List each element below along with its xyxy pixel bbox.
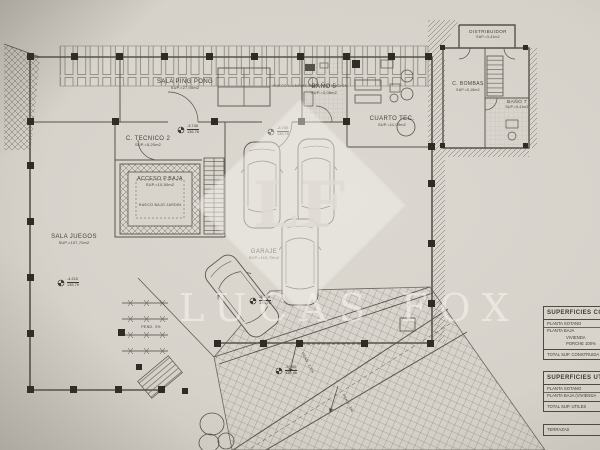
- hueco-bajo-jardin-note: HUECO BAJO JARDIN: [123, 203, 197, 207]
- table-title: SUPERFICIES CONSTRUIDAS: [544, 307, 600, 320]
- room-area: SUP.=3,41m2: [460, 35, 516, 39]
- table-total-row: TOTAL SUP. UTILES: [544, 401, 600, 411]
- room-area: SUP.=115,79m2: [232, 256, 296, 260]
- room-label-sala-juegos: SALA JUEGOS SUP.=107,70m2: [38, 234, 110, 246]
- table-row: PORCHE 100%: [544, 341, 600, 347]
- table-row: PLANTA SOTANO: [544, 386, 600, 393]
- table-row: PLANTA SOTANO: [544, 321, 600, 328]
- room-label-c-bombas: C. BOMBAS SUP.=5,18m2: [444, 82, 492, 92]
- room-area: SUP.=107,70m2: [38, 241, 110, 245]
- room-area: SUP.=11,09m2: [350, 123, 434, 127]
- driveway-ramp: [138, 278, 545, 450]
- room-label-bano-7: BAÑO 7 SUP.=5,41m2: [497, 100, 537, 110]
- table-title: SUPERFICIES UTILES: [544, 372, 600, 385]
- room-area: SUP.=3,08m2: [302, 91, 346, 95]
- table-row: TERRAZAS: [544, 425, 600, 435]
- room-name: C. BOMBAS: [444, 82, 492, 88]
- level-cota: 136.46: [285, 371, 297, 375]
- car-3: [279, 219, 321, 305]
- car-1: [241, 142, 283, 228]
- level-cota: 136.76: [187, 130, 199, 134]
- room-area: SUP.=10,50m2: [123, 183, 197, 187]
- level-marker: -4.210 135.79: [67, 277, 79, 287]
- room-label-distribuidor: DISTRIBUIDOR SUP.=3,41m2: [460, 29, 516, 39]
- level-marker: -3.740 136.76: [259, 295, 271, 305]
- table-terrazas: TERRAZAS: [543, 424, 600, 436]
- room-area: SUP.=5,18m2: [444, 88, 492, 92]
- table-total-row: TOTAL SUP. CONSTRUIDA: [544, 349, 600, 359]
- room-label-c-tecnico-2: C. TECNICO 2 SUP.=5,20m2: [108, 136, 188, 148]
- floor-plan-drawing: [0, 0, 600, 450]
- level-marker: -3.740 136.76: [187, 124, 199, 134]
- main-staircase: [204, 158, 224, 234]
- room-label-garaje: GARAJE SUP.=115,79m2: [232, 249, 296, 261]
- photographed-floor-plan: HUECO ILUMINACION Y VENTILACION SALA PIN…: [0, 0, 600, 450]
- slope-label-garden: PEND. 3%: [136, 325, 166, 329]
- room-label-cuarto-tec: CUARTO TEC. SUP.=11,09m2: [350, 116, 434, 128]
- car-2: [295, 139, 337, 225]
- room-area: SUP.=5,20m2: [108, 143, 188, 147]
- table-superficies-construidas: SUPERFICIES CONSTRUIDAS PLANTA SOTANO PL…: [543, 306, 600, 360]
- acceso-patio: [120, 164, 200, 234]
- level-cota: 136.76: [277, 132, 289, 136]
- level-marker: -3.740 136.76: [277, 126, 289, 136]
- room-label-sala-ping-pong: SALA PING PONG SUP.=27,00m2: [140, 79, 230, 91]
- room-name: DISTRIBUIDOR: [460, 29, 516, 34]
- level-marker: -3.950 136.46: [285, 365, 297, 375]
- room-label-bano-5: BAÑO 5 SUP.=3,08m2: [302, 84, 346, 96]
- table-superficies-utiles: SUPERFICIES UTILES PLANTA SOTANO PLANTA …: [543, 371, 600, 412]
- room-area: SUP.=27,00m2: [140, 86, 230, 90]
- room-label-acceso-pbaja: ACCESO P.BAJA SUP.=10,50m2: [123, 177, 197, 188]
- table-row: PLANTA BAJA (VIVIENDA: [544, 393, 600, 399]
- room-area: SUP.=5,41m2: [497, 106, 537, 110]
- level-cota: 136.76: [259, 301, 271, 305]
- level-cota: 135.79: [67, 283, 79, 287]
